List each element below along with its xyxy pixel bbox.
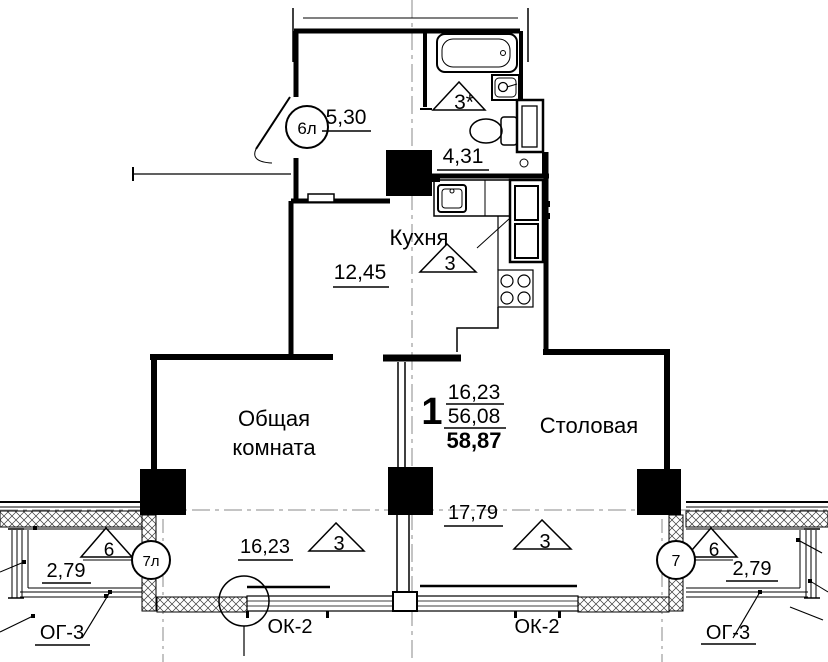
dining-room-area-label: 17,79 bbox=[448, 502, 498, 524]
dining-room-name-label: Столовая bbox=[540, 413, 638, 438]
dining-room-mark: 3 bbox=[539, 531, 550, 553]
balcony-left-area-label: 2,79 bbox=[47, 560, 86, 582]
kitchen-mark: 3 bbox=[444, 253, 455, 275]
glazing-left-label: ОГ-3 bbox=[40, 622, 84, 644]
living-room-name-line1: Общая bbox=[238, 406, 310, 431]
balcony-left-door-mark: 7л bbox=[142, 553, 159, 570]
living-room-area-label: 16,23 bbox=[240, 536, 290, 558]
bathroom-area-label: 4,31 bbox=[443, 145, 484, 168]
balcony-right-mark: 6 bbox=[709, 540, 720, 561]
bathroom-mark: 3* bbox=[454, 91, 474, 114]
living-room-name-line2: комната bbox=[232, 435, 316, 460]
glazing-right-label: ОГ-3 bbox=[706, 622, 750, 644]
balcony-right-door-mark: 7 bbox=[672, 553, 681, 570]
balcony-left-mark: 6 bbox=[104, 540, 115, 561]
window-left-label: ОК-2 bbox=[268, 616, 313, 638]
hall-area-label: 5,30 bbox=[326, 106, 367, 129]
kitchen-name-label: Кухня bbox=[390, 225, 449, 250]
window-right-label: ОК-2 bbox=[515, 616, 560, 638]
apartment-number: 1 bbox=[421, 391, 442, 433]
balcony-right-area-label: 2,79 bbox=[733, 558, 772, 580]
floor-plan: 5,30 6л 3* 4,31 Кухня 3 12,45 Общая комн… bbox=[0, 0, 828, 662]
apartment-total-area: 58,87 bbox=[446, 428, 501, 453]
interior-door bbox=[308, 194, 334, 202]
corridor-area-label: 12,45 bbox=[334, 261, 387, 284]
window-right bbox=[415, 596, 578, 611]
apartment-living-area: 16,23 bbox=[448, 381, 501, 404]
drawing-background bbox=[0, 0, 828, 662]
apartment-area: 56,08 bbox=[448, 405, 501, 428]
floor-plan-canvas: 5,30 6л 3* 4,31 Кухня 3 12,45 Общая комн… bbox=[0, 0, 828, 662]
entrance-door-mark: 6л bbox=[297, 119, 316, 138]
living-room-mark: 3 bbox=[333, 533, 344, 555]
window-mullion bbox=[393, 592, 417, 611]
